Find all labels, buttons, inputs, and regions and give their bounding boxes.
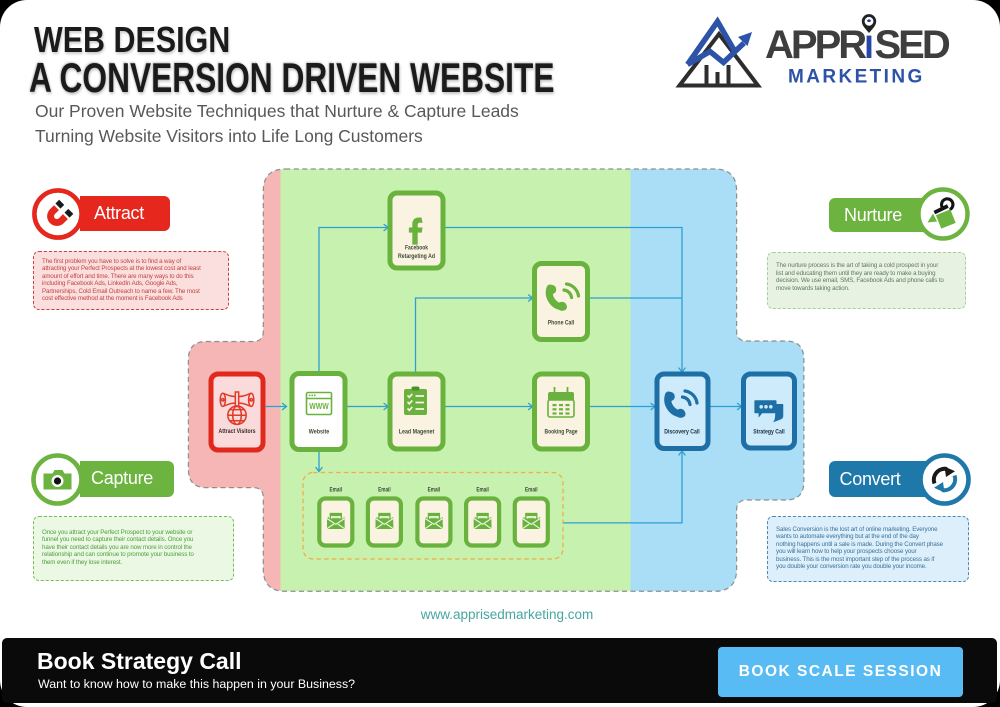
svg-text:Phone Call: Phone Call (548, 320, 575, 327)
svg-text:Website: Website (309, 429, 330, 436)
svg-text:WWW: WWW (309, 401, 329, 411)
svg-text:Strategy Call: Strategy Call (753, 429, 785, 436)
svg-text:Email: Email (428, 487, 441, 494)
svg-text:Discovery Call: Discovery Call (664, 429, 700, 436)
svg-text:Lead Magenet: Lead Magenet (399, 429, 435, 436)
svg-text:Email: Email (378, 487, 391, 494)
svg-text:Email: Email (525, 487, 538, 494)
svg-text:Attract Visitors: Attract Visitors (219, 428, 256, 435)
svg-text:Facebook: Facebook (405, 245, 428, 252)
svg-text:Booking Page: Booking Page (545, 429, 578, 436)
svg-text:Email: Email (476, 487, 489, 494)
svg-text:Email: Email (330, 487, 343, 494)
svg-text:Retargeting Ad: Retargeting Ad (398, 253, 435, 260)
